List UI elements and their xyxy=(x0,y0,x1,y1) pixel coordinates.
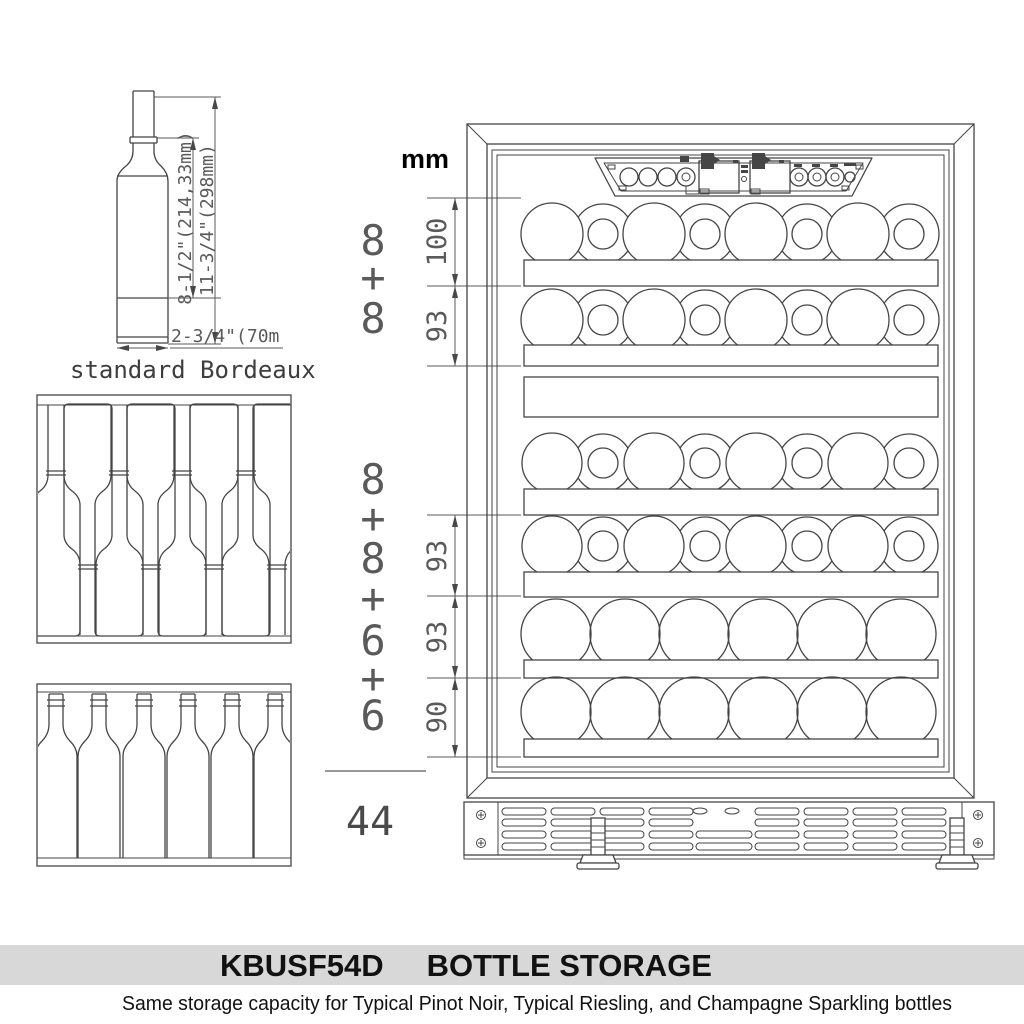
display-tick xyxy=(733,160,738,163)
bottle-base-side xyxy=(726,516,786,576)
vent-slot xyxy=(902,843,946,850)
panel-button[interactable] xyxy=(620,168,638,186)
panel-wire xyxy=(686,186,699,194)
bottle-base-side xyxy=(827,289,889,351)
bottle-row-2 xyxy=(521,289,939,366)
dim-value: 93 xyxy=(422,540,453,573)
mode-button[interactable] xyxy=(826,168,844,186)
count-value: 6 xyxy=(360,691,385,740)
plinth-body xyxy=(464,802,994,855)
vent-slot xyxy=(600,843,644,850)
bottle-neck xyxy=(690,448,720,478)
upper-dimensions: 100 93 xyxy=(422,198,521,366)
bottle-neck xyxy=(588,219,618,249)
bottle-neck xyxy=(792,219,822,249)
dim-value: 93 xyxy=(422,621,453,654)
bottle-neck xyxy=(588,531,618,561)
button-mark xyxy=(830,164,838,167)
panel-inner xyxy=(604,163,863,191)
lower-dimensions: 93 93 90 xyxy=(422,515,521,757)
dim-value: 100 xyxy=(422,218,453,267)
screw-icon xyxy=(477,811,983,848)
vent-slot xyxy=(502,819,546,826)
bottle-base-side xyxy=(521,677,591,747)
bottle-base-side xyxy=(728,599,798,669)
shelf-2 xyxy=(524,345,938,366)
mid-indicator xyxy=(742,177,747,182)
bottle-base-side xyxy=(728,677,798,747)
vent-slot xyxy=(649,831,693,838)
spec-sheet: 8-1/2"(214,33mm) 11-3/4"(298mm) 2-3/4"(7… xyxy=(0,0,1024,1024)
bottle-base-side xyxy=(725,203,787,265)
mid-mark xyxy=(741,165,748,168)
vent-slot xyxy=(649,843,693,850)
vent-slot xyxy=(755,831,799,838)
total-bottle-count: 44 xyxy=(346,799,394,845)
bottle-base-side xyxy=(624,433,684,493)
control-panel xyxy=(595,153,872,196)
bottle-neck xyxy=(690,219,720,249)
bottle-rows xyxy=(521,203,939,757)
unit-label: mm xyxy=(401,144,449,174)
vent-slot xyxy=(649,819,693,826)
vent-slot xyxy=(502,831,546,838)
light-button[interactable] xyxy=(677,168,695,186)
bottle-neck xyxy=(894,219,924,249)
button-mark xyxy=(812,164,820,167)
vent-slot-wide xyxy=(696,831,752,838)
button-ring xyxy=(831,173,839,181)
vent-slot xyxy=(600,808,644,815)
bottle-spec-drawing: 8-1/2"(214,33mm) 11-3/4"(298mm) 2-3/4"(7… xyxy=(117,91,283,348)
vent-slot xyxy=(804,831,848,838)
mid-mark xyxy=(741,170,748,173)
vent-slot xyxy=(853,808,897,815)
page-title: BOTTLE STORAGE xyxy=(427,948,712,983)
bottle-base-side xyxy=(521,599,591,669)
bottle-base-side xyxy=(522,516,582,576)
standard-bottle-label: standard Bordeaux xyxy=(70,356,316,384)
panel-button[interactable] xyxy=(658,168,676,186)
bottle-row-5 xyxy=(521,599,938,678)
model-number: KBUSF54D xyxy=(220,948,384,983)
vent-slot xyxy=(551,819,595,826)
bottle-neck xyxy=(894,305,924,335)
power-button[interactable] xyxy=(845,172,855,182)
vent-slot xyxy=(853,843,897,850)
count-value: 8 xyxy=(360,294,385,343)
light-icon xyxy=(680,156,689,162)
vent-slot xyxy=(755,808,799,815)
display-bottle-icon xyxy=(752,153,765,169)
bottle-neck xyxy=(588,305,618,335)
rack-top-view xyxy=(32,395,301,643)
temp-up-button[interactable] xyxy=(790,168,808,186)
bottle-base-side xyxy=(590,677,660,747)
vent-slot xyxy=(551,843,595,850)
upper-counts: 8 + 8 xyxy=(360,216,385,343)
footer-title: KBUSF54DBOTTLE STORAGE xyxy=(220,948,712,983)
bottle-base-side xyxy=(623,203,685,265)
vent-slot xyxy=(502,843,546,850)
plinth xyxy=(464,802,994,869)
button-ring xyxy=(795,173,803,181)
light-button-ring xyxy=(682,173,690,181)
vent-slot xyxy=(853,819,897,826)
bottle-body-height-label: 8-1/2"(214,33mm) xyxy=(175,131,196,304)
bottle-base-side xyxy=(828,433,888,493)
bottle-base-side xyxy=(797,677,867,747)
rack-front-view-bottles xyxy=(35,694,296,858)
panel-button[interactable] xyxy=(639,168,657,186)
panel-outer xyxy=(595,158,872,196)
bottle-base-width-label: 2-3/4"(70m xyxy=(171,326,279,347)
display-tick xyxy=(779,160,784,163)
bottle-neck xyxy=(792,531,822,561)
bottle-row-4 xyxy=(522,516,938,597)
vent-hole xyxy=(693,808,707,814)
vent-slot xyxy=(551,808,595,815)
vent-slot xyxy=(551,831,595,838)
wine-cooler xyxy=(464,124,994,869)
bottle-neck xyxy=(690,531,720,561)
bottle-base-side xyxy=(521,289,583,351)
bottle-neck xyxy=(792,305,822,335)
shelf-5 xyxy=(524,660,938,678)
shelf-1 xyxy=(524,260,938,286)
vent-slot xyxy=(600,819,644,826)
footer-subtitle: Same storage capacity for Typical Pinot … xyxy=(122,993,952,1015)
zone-divider xyxy=(524,377,938,417)
bottle-base-side xyxy=(828,516,888,576)
bottle-neck xyxy=(588,448,618,478)
bottle-overall-height-label: 11-3/4"(298mm) xyxy=(197,144,218,296)
lower-counts: 8 + 8 + 6 + 6 xyxy=(360,455,385,740)
bottle-base-side xyxy=(827,203,889,265)
vent-slot xyxy=(600,831,644,838)
vent-slot xyxy=(902,831,946,838)
bottle-outline xyxy=(117,91,168,343)
shelf-4 xyxy=(524,572,938,597)
panel-tick xyxy=(608,165,615,169)
bottle-base-side xyxy=(725,289,787,351)
rack-top-view-bottles xyxy=(32,404,301,636)
bottle-base-side xyxy=(590,599,660,669)
bottle-base-side xyxy=(623,289,685,351)
temp-down-button[interactable] xyxy=(808,168,826,186)
bottle-extension-lines xyxy=(154,97,283,348)
vent-slot xyxy=(755,843,799,850)
vent-slot-wide xyxy=(696,843,752,850)
bottle-neck xyxy=(792,448,822,478)
bottle-base-side xyxy=(659,599,729,669)
bottle-base-side xyxy=(726,433,786,493)
vent-slot xyxy=(902,819,946,826)
vent-slot xyxy=(853,831,897,838)
vent-slot xyxy=(902,808,946,815)
vent-slot xyxy=(804,843,848,850)
shelf-6 xyxy=(524,739,938,757)
bottle-base-side xyxy=(866,599,936,669)
vent-slot xyxy=(502,808,546,815)
bottle-base-side xyxy=(659,677,729,747)
button-mark xyxy=(794,164,802,167)
bottle-row-1 xyxy=(521,203,939,286)
button-mark xyxy=(844,163,856,166)
vent-grille xyxy=(502,808,946,850)
bottle-neck xyxy=(894,531,924,561)
vent-slot xyxy=(804,819,848,826)
dim-value: 93 xyxy=(422,310,453,343)
plinth-dividers xyxy=(498,802,962,855)
bottle-neck xyxy=(894,448,924,478)
shelf-3 xyxy=(524,489,938,515)
rack-front-view xyxy=(35,684,296,866)
button-ring xyxy=(813,173,821,181)
bottle-base-side xyxy=(521,203,583,265)
vent-hole xyxy=(725,808,739,814)
display-bottle-icon xyxy=(701,153,714,169)
bottle-base-side xyxy=(522,433,582,493)
vent-slot xyxy=(804,808,848,815)
vent-slot xyxy=(649,808,693,815)
bottle-row-6 xyxy=(521,677,938,757)
bottle-neck xyxy=(690,305,720,335)
bottle-base-side xyxy=(866,677,936,747)
bottle-base-side xyxy=(797,599,867,669)
vent-slot xyxy=(755,819,799,826)
bottle-base-side xyxy=(624,516,684,576)
bottle-row-3 xyxy=(522,433,938,515)
dim-value: 90 xyxy=(422,701,453,734)
